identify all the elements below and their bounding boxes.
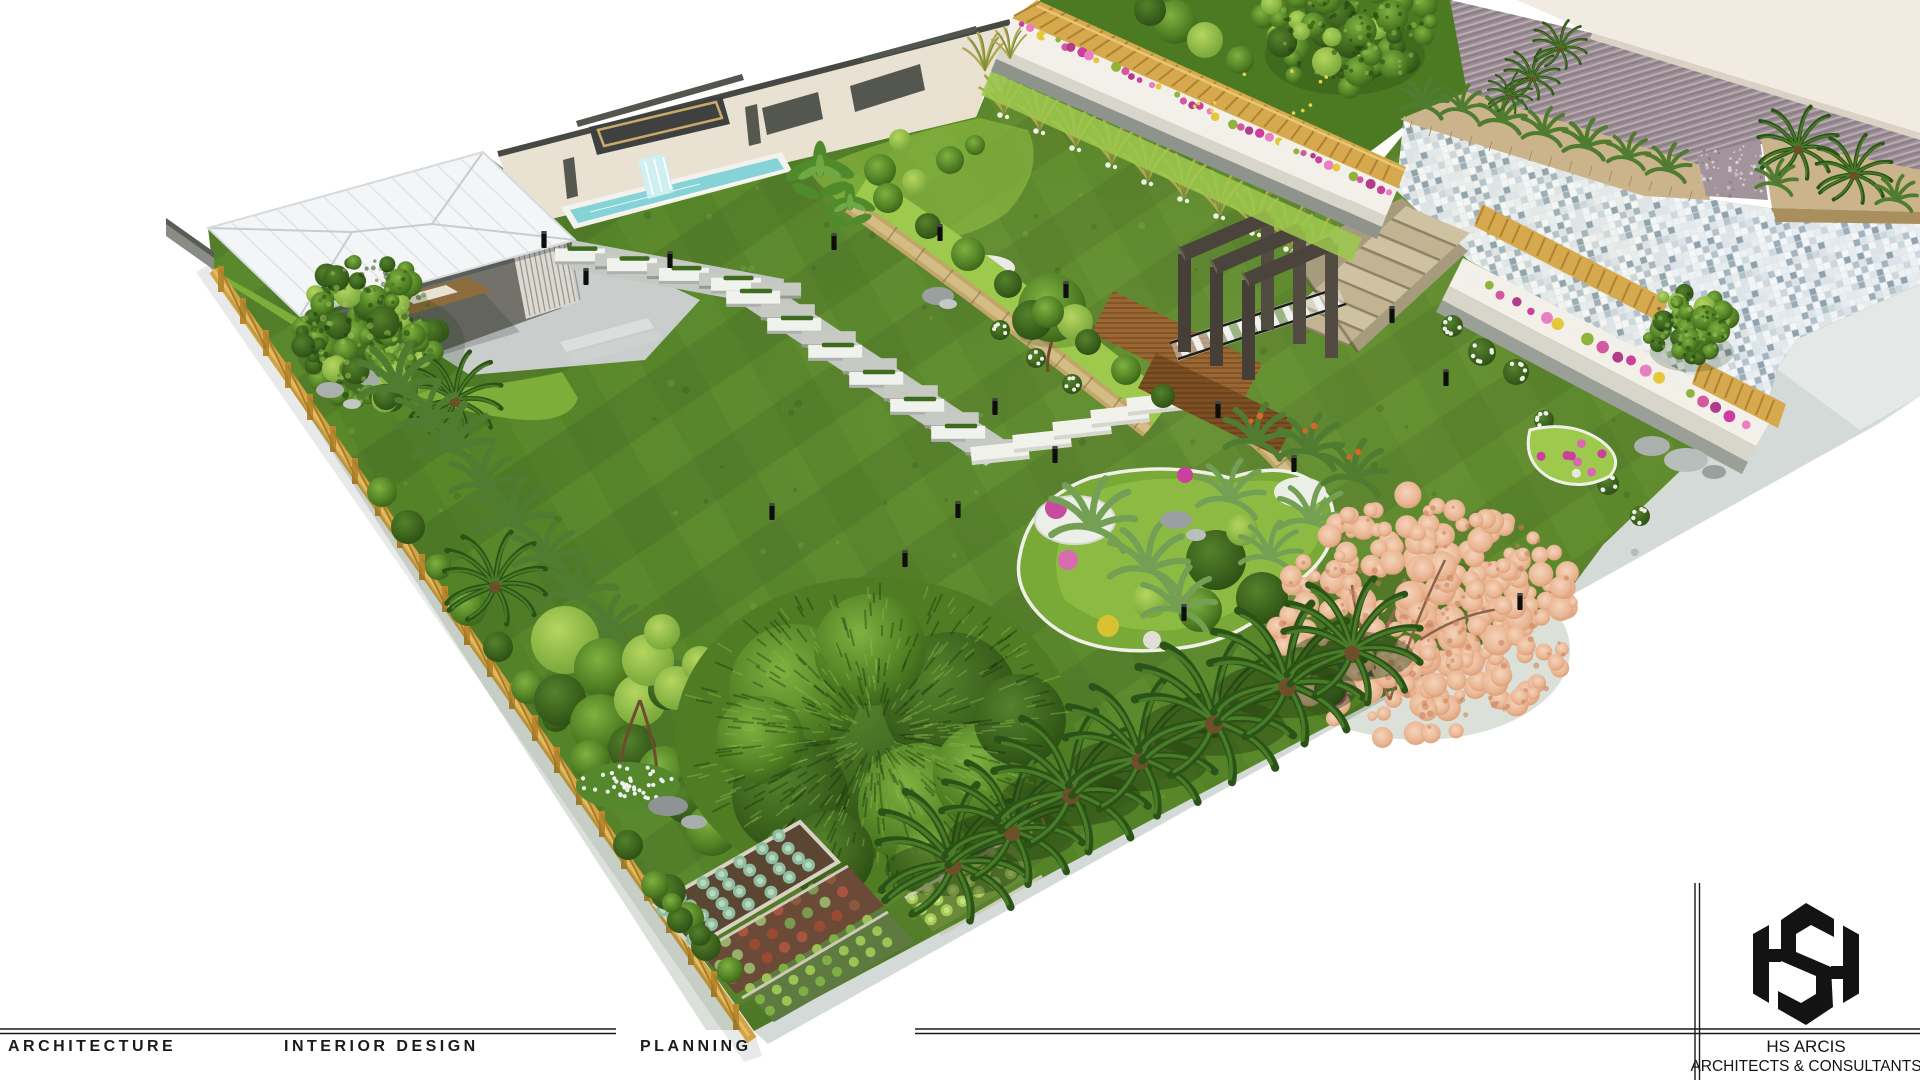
svg-text:HS ARCIS: HS ARCIS [1766, 1037, 1845, 1056]
svg-text:PLANNING: PLANNING [640, 1038, 752, 1055]
svg-text:ARCHITECTS & CONSULTANTS: ARCHITECTS & CONSULTANTS [1690, 1058, 1920, 1075]
svg-text:INTERIOR DESIGN: INTERIOR DESIGN [284, 1038, 479, 1055]
svg-text:ARCHITECTURE: ARCHITECTURE [8, 1038, 176, 1055]
